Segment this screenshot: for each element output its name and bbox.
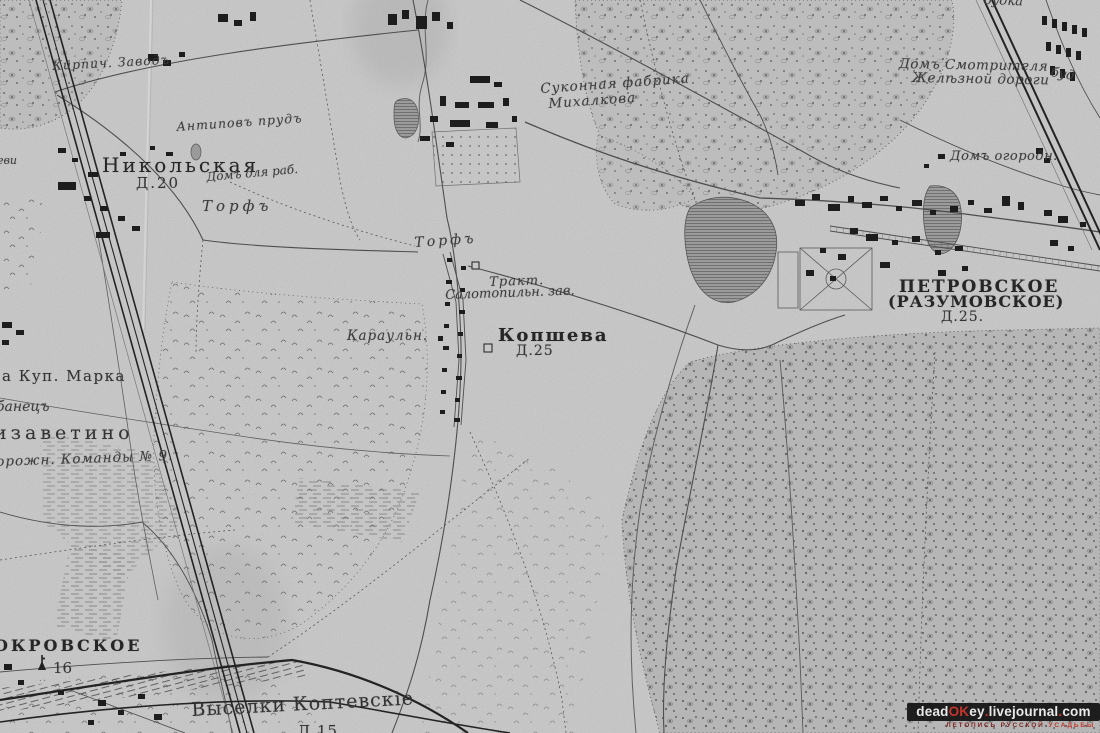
label-torf-2: Торфъ <box>414 232 477 250</box>
watermark-segment: OK <box>949 705 970 719</box>
label-dom-smotritelya-line2: Желѣзной дороги <box>912 72 1050 88</box>
watermark-segment: com <box>1062 705 1090 719</box>
label-dom-ogorodnika: Домъ огородн. <box>950 150 1058 163</box>
label-banets-partial: банецъ <box>0 400 50 414</box>
label-kopsheva-households: Д.25 <box>516 344 554 358</box>
label-bud: буд <box>1050 66 1076 83</box>
label-karaulnya: Караульн. <box>347 330 428 344</box>
label-petrovskoe-line2: (РАЗУМОВСКОЕ) <box>888 294 1064 310</box>
label-pokrovskoe-number: 16 <box>53 661 72 676</box>
watermark-segment: ey <box>969 705 984 719</box>
watermark-segment: dead <box>916 705 948 719</box>
watermark-badge: deadOKey.livejournal.com <box>907 703 1100 721</box>
label-elizavetino-partial: изаветино <box>0 424 134 443</box>
watermark-tagline: ЛЕТОПИСЬ РУССКОЙУСАДЬБЫ <box>895 722 1095 729</box>
label-budka: будка <box>984 0 1024 8</box>
church-icon <box>36 655 48 672</box>
label-kup-marka: а Куп. Марка <box>2 369 126 384</box>
label-vyselki-households-partial: Д.15 <box>298 724 338 733</box>
label-left-edge-partial: еви <box>0 155 17 166</box>
watermark-segment: livejournal <box>989 705 1059 719</box>
map-canvas: Кирпич. Заводъ будка Домъ Смотрителя Жел… <box>0 0 1100 733</box>
label-petrovskoe-households: Д.25. <box>941 310 984 324</box>
watermark-tagline-part: ЛЕТОПИСЬ РУССКОЙ <box>942 722 1044 729</box>
label-pokrovskoe-partial: ОКРОВСКОЕ <box>0 638 142 654</box>
label-torf-1: Торфъ <box>202 199 272 214</box>
label-nikolskaya-households: Д.20 <box>136 176 180 191</box>
factory-pond <box>394 99 419 139</box>
factory-orchard <box>432 128 520 186</box>
watermark-tagline-part: УСАДЬБЫ <box>1045 722 1095 729</box>
